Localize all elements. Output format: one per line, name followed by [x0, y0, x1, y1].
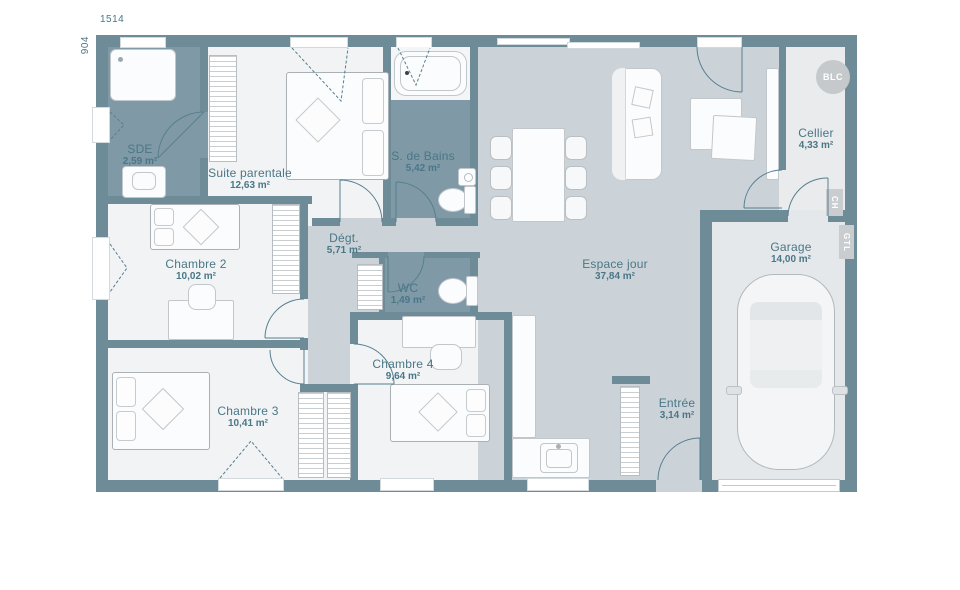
desk-chair: [188, 284, 216, 310]
dining-chair: [490, 196, 512, 220]
car-rear-window: [750, 370, 822, 388]
wall-outer-top: [96, 35, 857, 47]
window: [92, 237, 110, 300]
door-opening: [779, 170, 786, 210]
dining-chair: [565, 166, 587, 190]
door-opening: [200, 112, 208, 158]
dimension-width: 1514: [100, 14, 124, 25]
door-opening: [350, 344, 358, 384]
toilet-tank: [464, 186, 476, 214]
dining-chair: [490, 136, 512, 160]
terrace-door: [697, 37, 742, 48]
pillow: [116, 377, 136, 407]
toilet-tank: [466, 276, 478, 306]
door-opening: [396, 218, 436, 226]
water-heater: BLC: [816, 60, 850, 94]
wardrobe: [209, 55, 237, 162]
dimension-height: 904: [80, 36, 91, 54]
kitchen-counter: [512, 315, 536, 438]
wall-segment: [504, 320, 512, 480]
window: [120, 37, 166, 48]
wardrobe: [327, 392, 351, 478]
pillow: [362, 130, 384, 176]
bathtub-inner: [400, 56, 461, 91]
pillow: [116, 411, 136, 441]
door-opening: [340, 218, 382, 226]
door-opening: [300, 299, 308, 338]
window: [380, 478, 434, 491]
door-opening: [300, 350, 308, 384]
radiator: [620, 386, 640, 476]
wall-segment: [612, 376, 650, 384]
wardrobe: [272, 204, 300, 294]
window: [218, 478, 284, 491]
sideboard: [766, 68, 779, 180]
door-opening: [388, 252, 424, 258]
sofa-backrest: [612, 68, 626, 180]
washbasin-bowl: [132, 172, 156, 190]
dining-chair: [565, 196, 587, 220]
sofa-pillow: [631, 86, 654, 109]
car-mirror: [726, 386, 742, 395]
floor-plan: 1514 904: [0, 0, 960, 590]
front-door-opening: [656, 480, 702, 492]
dining-chair: [565, 136, 587, 160]
garage-door-line: [722, 485, 836, 486]
sofa-pillow: [632, 117, 654, 139]
car-windshield: [750, 302, 822, 322]
window: [527, 478, 589, 491]
gtl-tag: GTL: [839, 225, 854, 259]
kitchen-sink-bowl: [546, 449, 572, 468]
window: [92, 107, 110, 143]
pillow: [154, 208, 174, 226]
wall-segment: [108, 340, 308, 348]
pillow: [466, 389, 486, 412]
wall-segment: [312, 218, 478, 226]
door-opening: [788, 210, 828, 222]
washbasin-drain: [464, 173, 473, 182]
floor-hall: [308, 312, 356, 390]
desk-chair: [430, 344, 462, 370]
pillow: [362, 78, 384, 124]
wall-segment: [300, 384, 358, 392]
cupboard: [357, 264, 383, 310]
wall-segment: [700, 210, 712, 480]
car-roof: [750, 320, 822, 372]
pillow: [466, 414, 486, 437]
wall-outer-right: [845, 35, 857, 492]
dining-table: [512, 128, 565, 222]
pillow: [154, 228, 174, 246]
shower-drain: [118, 57, 123, 62]
car-mirror: [832, 386, 848, 395]
bathtub-drain: [405, 71, 409, 75]
toilet-bowl: [438, 278, 468, 304]
faucet: [556, 444, 561, 449]
boiler-tag: CH: [826, 189, 843, 216]
sliding-bay-window: [567, 42, 640, 49]
armchair: [711, 115, 757, 161]
dining-chair: [490, 166, 512, 190]
wardrobe: [298, 392, 324, 478]
sliding-bay-window: [497, 38, 570, 45]
window: [290, 37, 348, 48]
wall-segment: [350, 312, 358, 480]
